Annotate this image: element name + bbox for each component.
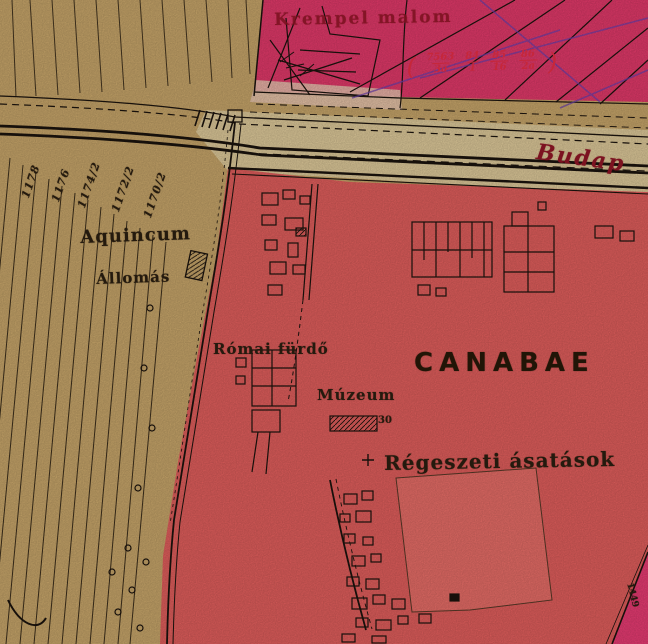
historical-map-aquincum: Krempel malom ( 7563 3a 84 1 85 16 86 2a…	[0, 0, 648, 644]
parcel-fraction: 84 1	[465, 51, 480, 73]
map-canvas	[0, 0, 648, 644]
label-museum: Múzeum	[317, 388, 395, 403]
paren-close: )	[547, 50, 557, 74]
parcel-fraction: 7563 3a	[426, 52, 455, 75]
label-aquincum-station: Aquincum	[80, 225, 191, 247]
label-krempel-mill: Krempel malom	[274, 9, 453, 29]
paper-grain-overlay	[0, 0, 648, 644]
label-excavations: Régeszeti ásatások	[384, 449, 615, 473]
parcel-fraction: 85 16	[490, 50, 509, 73]
label-roman-bath: Római fürdő	[213, 342, 329, 357]
label-museum-number: 30	[378, 416, 392, 426]
label-allomas: Állomás	[96, 269, 171, 287]
label-canabae: CANABAE	[414, 350, 595, 376]
pink-parcel-numbers: ( 7563 3a 84 1 85 16 86 2a )	[406, 49, 558, 79]
parcel-fraction: 86 2a	[519, 49, 537, 72]
paren-open: (	[406, 55, 416, 79]
